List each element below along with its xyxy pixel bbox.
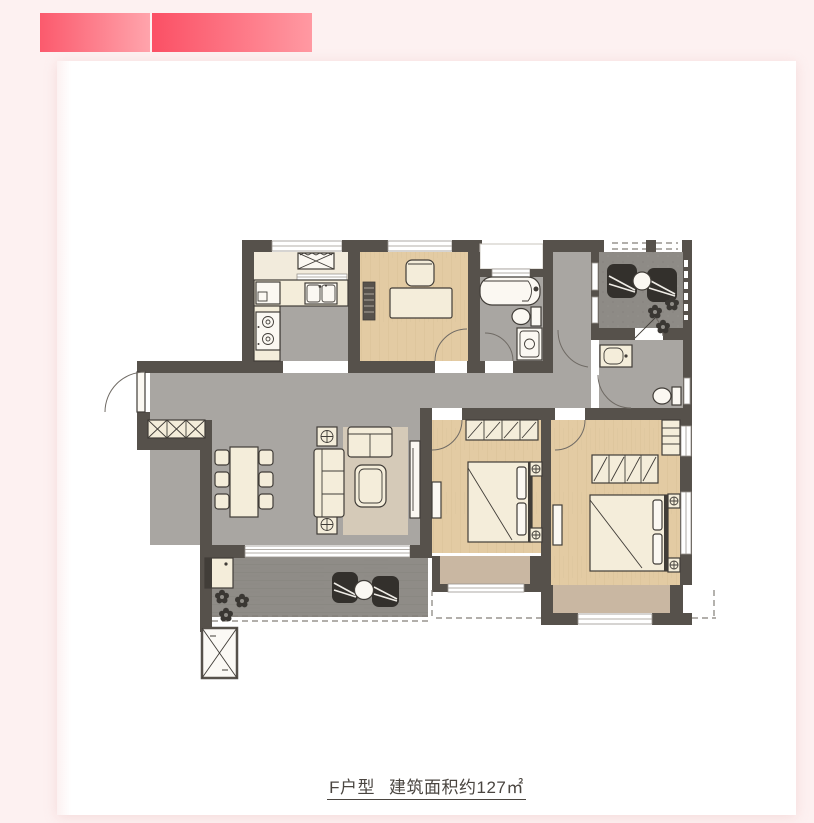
floor-plan-caption: F户型建筑面积约127㎡ (57, 773, 796, 798)
floor-lamp (317, 515, 337, 534)
balcony-top-table (633, 272, 651, 290)
area-label: 建筑面积约127㎡ (389, 778, 524, 797)
nightstand (530, 462, 542, 476)
bedroom1-dresser (432, 482, 441, 518)
banner-decoration-1 (40, 13, 150, 52)
bathtub (480, 277, 540, 305)
balcony-cabinet (205, 558, 233, 588)
master-cabinet (662, 420, 680, 455)
unit-type-label: F户型 (329, 778, 375, 797)
kitchen-stove (256, 312, 280, 350)
bedroom1-bay-window-seat (440, 556, 530, 584)
tv-stand (410, 441, 420, 518)
washing-machine (517, 328, 542, 360)
kitchen-sink (305, 283, 337, 304)
nightstand (530, 528, 542, 542)
page: { "theme": { "page_bg": "#fdf1f1", "card… (0, 0, 814, 823)
hallway-floor (420, 373, 553, 408)
floor-plan-image (100, 228, 720, 698)
study-desk (390, 288, 452, 318)
corridor-floor (553, 252, 591, 408)
master-bench (553, 505, 562, 545)
dining-table-set (215, 447, 273, 517)
washbasin-vanity (600, 345, 632, 367)
master-wardrobe (592, 455, 658, 483)
toilet-2 (653, 387, 681, 405)
floor-lamp (317, 427, 337, 446)
master-bed (590, 495, 668, 571)
entry-door-leaf (137, 372, 145, 412)
balcony-bottom-chair-2 (372, 576, 399, 607)
toilet-1 (512, 307, 541, 326)
nightstand (668, 494, 680, 508)
duct-shaft (202, 628, 237, 678)
nightstand (668, 558, 680, 572)
sofa (314, 449, 344, 517)
loveseat (348, 427, 392, 457)
master-bay-window-seat (553, 585, 670, 613)
content-card: F户型建筑面积约127㎡ (57, 61, 796, 815)
bedroom1-bed (468, 462, 532, 542)
bedroom1-wardrobe (466, 420, 538, 440)
balcony-bottom-chair-1 (332, 572, 358, 603)
banner-decoration-2 (152, 13, 312, 52)
shoe-cabinet (148, 420, 205, 438)
balcony-bottom-table (355, 581, 374, 600)
